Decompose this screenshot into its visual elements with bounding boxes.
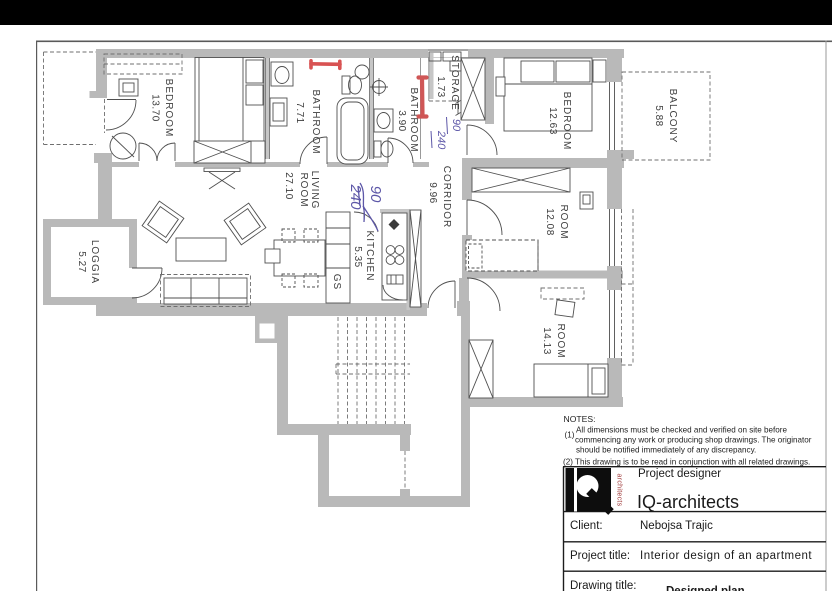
svg-text:1.73: 1.73 bbox=[435, 76, 446, 97]
svg-text:BATHROOM: BATHROOM bbox=[310, 89, 321, 154]
svg-text:12.63: 12.63 bbox=[547, 107, 558, 135]
svg-text:90: 90 bbox=[367, 186, 384, 203]
svg-text:All dimensions must be checked: All dimensions must be checked and verif… bbox=[576, 426, 788, 435]
svg-text:CORRIDOR: CORRIDOR bbox=[441, 166, 452, 228]
svg-text:KITCHEN: KITCHEN bbox=[364, 231, 375, 282]
svg-text:3.90: 3.90 bbox=[396, 110, 407, 131]
svg-text:Nebojsa Trajic: Nebojsa Trajic bbox=[640, 520, 713, 532]
svg-text:LOGGIA: LOGGIA bbox=[89, 240, 100, 284]
svg-text:(2) This drawing is to be read: (2) This drawing is to be read in conjun… bbox=[563, 458, 810, 467]
svg-text:commencing any work or produci: commencing any work or producing shop dr… bbox=[575, 436, 812, 445]
svg-text:Interior design of an apartmen: Interior design of an apartment bbox=[640, 550, 812, 562]
svg-text:GS: GS bbox=[331, 274, 342, 290]
svg-text:240: 240 bbox=[435, 130, 447, 150]
svg-text:BATHROOM: BATHROOM bbox=[408, 87, 419, 152]
svg-text:Project designer: Project designer bbox=[638, 468, 721, 480]
svg-text:27.10: 27.10 bbox=[283, 172, 294, 200]
svg-text:12.08: 12.08 bbox=[544, 208, 555, 236]
svg-text:STORAGE: STORAGE bbox=[449, 55, 460, 111]
svg-text:BALCONY: BALCONY bbox=[667, 89, 678, 144]
svg-text:architects: architects bbox=[616, 474, 623, 507]
svg-text:Project title:: Project title: bbox=[570, 550, 630, 562]
svg-text:Client:: Client: bbox=[570, 520, 603, 532]
svg-text:NOTES:: NOTES: bbox=[564, 414, 596, 424]
svg-text:5.27: 5.27 bbox=[76, 251, 87, 272]
svg-text:Designed plan: Designed plan bbox=[666, 586, 745, 591]
svg-text:5.35: 5.35 bbox=[352, 246, 363, 267]
svg-text:(1): (1) bbox=[565, 431, 575, 440]
svg-text:ROOM: ROOM bbox=[558, 204, 569, 239]
svg-text:14.13: 14.13 bbox=[541, 327, 552, 355]
svg-text:should be notified immediately: should be notified immediately of any di… bbox=[576, 446, 756, 455]
svg-text:BEDROOM: BEDROOM bbox=[561, 92, 572, 151]
svg-text:13.70: 13.70 bbox=[150, 94, 161, 122]
svg-text:90: 90 bbox=[450, 119, 462, 132]
svg-text:ROOM: ROOM bbox=[555, 323, 566, 358]
svg-text:ROOM: ROOM bbox=[298, 172, 309, 207]
svg-text:Drawing title:: Drawing title: bbox=[570, 580, 636, 591]
svg-text:BEDROOM: BEDROOM bbox=[163, 79, 174, 138]
svg-text:IQ-architects: IQ-architects bbox=[637, 492, 739, 512]
svg-text:5.88: 5.88 bbox=[653, 105, 664, 126]
svg-text:LIVING: LIVING bbox=[309, 171, 320, 210]
svg-text:9.96: 9.96 bbox=[427, 182, 438, 203]
svg-text:7.71: 7.71 bbox=[294, 102, 305, 123]
